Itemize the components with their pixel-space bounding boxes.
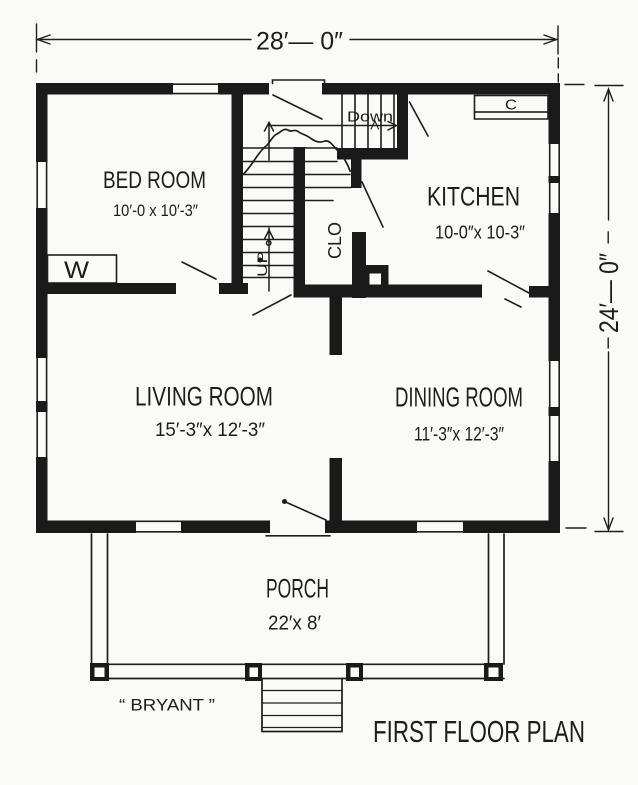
svg-text:11′-3″x 12′-3″: 11′-3″x 12′-3″	[414, 425, 504, 446]
svg-text:28′— 0″: 28′— 0″	[256, 28, 343, 56]
svg-text:22′x 8′: 22′x 8′	[268, 613, 321, 635]
svg-text:15′-3″x 12′-3″: 15′-3″x 12′-3″	[155, 420, 265, 441]
svg-text:BED ROOM: BED ROOM	[103, 167, 206, 194]
svg-text:LIVING ROOM: LIVING ROOM	[135, 382, 273, 412]
svg-text:10′-0 x 10′-3″: 10′-0 x 10′-3″	[113, 201, 198, 220]
svg-text:PORCH: PORCH	[266, 574, 329, 604]
svg-text:UP: UP	[254, 251, 270, 277]
svg-text:DINING ROOM: DINING ROOM	[395, 382, 523, 413]
svg-text:C: C	[505, 97, 517, 114]
svg-text:CLO: CLO	[325, 222, 345, 259]
svg-text:W: W	[64, 257, 89, 284]
svg-text:24′— 0″: 24′— 0″	[594, 253, 624, 333]
svg-text:FIRST FLOOR PLAN: FIRST FLOOR PLAN	[373, 714, 585, 749]
svg-text:10-0″x 10-3″: 10-0″x 10-3″	[435, 223, 526, 243]
svg-text:Down: Down	[347, 109, 393, 126]
svg-text:KITCHEN: KITCHEN	[427, 182, 520, 212]
svg-text:“ BRYANT ”: “ BRYANT ”	[119, 696, 215, 715]
